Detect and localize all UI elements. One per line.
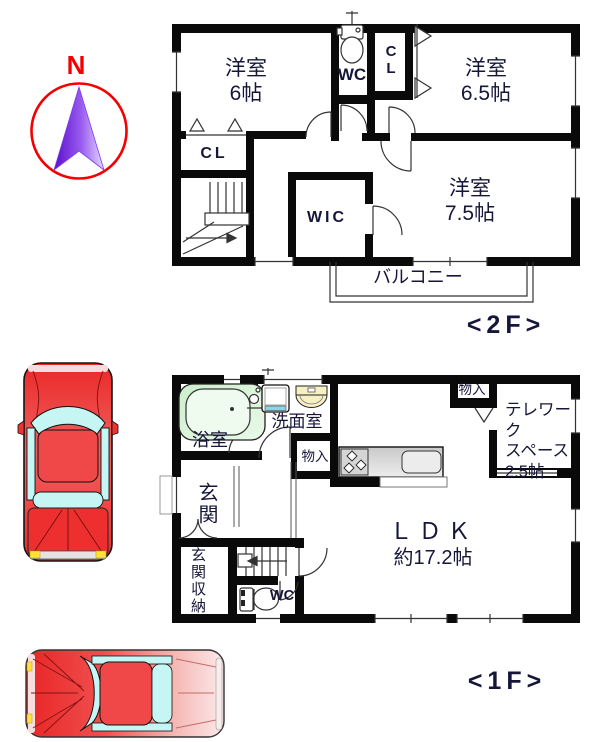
- ldk-size: 約17.2帖: [348, 546, 518, 570]
- compass-north-arrow: [54, 87, 104, 170]
- room-label-ldk: ＬＤＫ 約17.2帖: [348, 518, 518, 570]
- room-label-bedroom75: 洋室7.5帖: [420, 176, 520, 226]
- room-label-closet-side: CL: [184, 144, 244, 163]
- room-label-wc-2f: WC: [327, 65, 377, 85]
- stairs-2f-icon: [183, 182, 249, 254]
- room-label-telework: テレワーク スペース 2.5帖: [505, 400, 577, 482]
- floor-label-1f: <1F>: [442, 666, 572, 696]
- room-label-washroom: 洗面室: [247, 412, 347, 432]
- car-top-view-horizontal: [26, 650, 224, 737]
- room-label-wc-1f: WC: [257, 588, 307, 605]
- room-label-bedroom6: 洋室6帖: [196, 56, 296, 106]
- room-label-storage-ldk: 物入: [444, 382, 500, 398]
- stairs-1f-icon: [238, 547, 287, 576]
- bedroom65-size: 6.5帖: [461, 82, 511, 105]
- compass-north-label: N: [56, 50, 96, 81]
- bedroom65-name: 洋室: [465, 57, 507, 80]
- room-label-closet-top: C L: [371, 43, 411, 77]
- washing-machine-icon: [262, 385, 289, 412]
- bedroom6-size: 6帖: [230, 82, 263, 105]
- car-top-view-vertical: [18, 363, 118, 561]
- floor-label-2f: <2F>: [441, 310, 571, 340]
- bedroom6-name: 洋室: [225, 57, 267, 80]
- compass-rose: [32, 84, 127, 179]
- room-label-bathroom: 浴室: [170, 430, 250, 452]
- washbasin-icon: [296, 386, 327, 407]
- floorplan-drawing: [0, 0, 600, 742]
- floorplan-canvas: N 洋室6帖 洋室6.5帖 洋室7.5帖 WC C L CL WIC バルコニー…: [0, 0, 600, 742]
- room-label-storage-hall: 物入: [287, 449, 343, 465]
- room-label-wic: WIC: [287, 208, 367, 227]
- room-label-entrance: 玄関: [194, 474, 218, 534]
- room-label-bedroom65: 洋室6.5帖: [436, 56, 536, 106]
- bedroom75-size: 7.5帖: [445, 202, 495, 225]
- ldk-name: ＬＤＫ: [348, 518, 518, 546]
- room-label-balcony: バルコニー: [348, 267, 488, 289]
- room-label-entrance-storage: 玄関収納: [188, 546, 206, 616]
- bedroom75-name: 洋室: [449, 177, 491, 200]
- toilet-icon-2f: [337, 25, 363, 63]
